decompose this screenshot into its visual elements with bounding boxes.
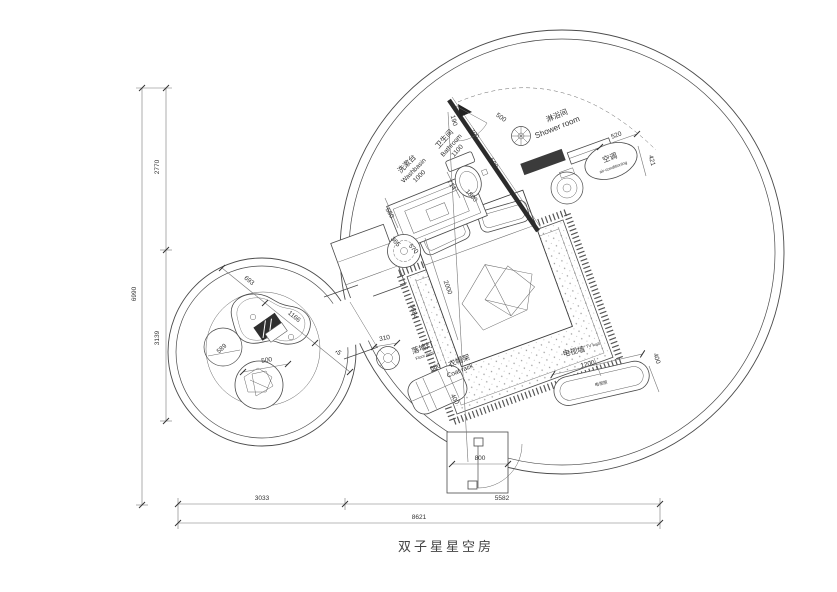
bottom-dimension-lines: 3033 5582 8621 bbox=[175, 495, 663, 529]
dim-500-top: 500 bbox=[494, 112, 507, 124]
dim-693: 693 bbox=[243, 275, 256, 288]
floor-plan-page: 2770 3139 6990 3033 5582 8621 双子星星空房 bbox=[0, 0, 837, 592]
dim-8621: 8621 bbox=[412, 514, 427, 521]
dim-2770: 2770 bbox=[154, 159, 161, 174]
dim-6990: 6990 bbox=[131, 286, 138, 301]
dim-700: 700 bbox=[468, 128, 480, 141]
washing-machine bbox=[551, 168, 583, 204]
shower-bench-dark bbox=[520, 149, 565, 175]
lounge-room: 693 1166 745 589 500 bbox=[168, 258, 356, 446]
dim-400-tv: 400 bbox=[651, 352, 661, 365]
drawing-title: 双子星星空房 bbox=[398, 539, 494, 554]
shower-head-icon bbox=[512, 127, 531, 146]
floor-plan-drawing: 2770 3139 6990 3033 5582 8621 双子星星空房 bbox=[0, 0, 837, 592]
dim-421: 421 bbox=[647, 154, 657, 167]
floor-drain bbox=[481, 169, 488, 176]
entry-vestibule: 800 bbox=[447, 432, 522, 493]
dim-3139: 3139 bbox=[154, 330, 161, 345]
lounge-stool-cushion bbox=[235, 361, 283, 409]
dim-800: 800 bbox=[475, 455, 486, 462]
dim-3033: 3033 bbox=[255, 495, 270, 502]
dim-500-stool: 500 bbox=[261, 356, 273, 365]
dim-310: 310 bbox=[379, 334, 391, 343]
washbasin-label: 洗漱台 Washbasin 1000 bbox=[392, 148, 434, 190]
dim-5582: 5582 bbox=[495, 495, 510, 502]
floor-lamp bbox=[377, 347, 400, 370]
shower-label: 淋浴间 Shower room bbox=[529, 103, 581, 140]
dim-589: 589 bbox=[216, 342, 229, 355]
dim-190: 190 bbox=[449, 114, 459, 127]
left-dimension-lines: 2770 3139 6990 bbox=[131, 85, 172, 508]
dim-520: 520 bbox=[610, 130, 623, 140]
